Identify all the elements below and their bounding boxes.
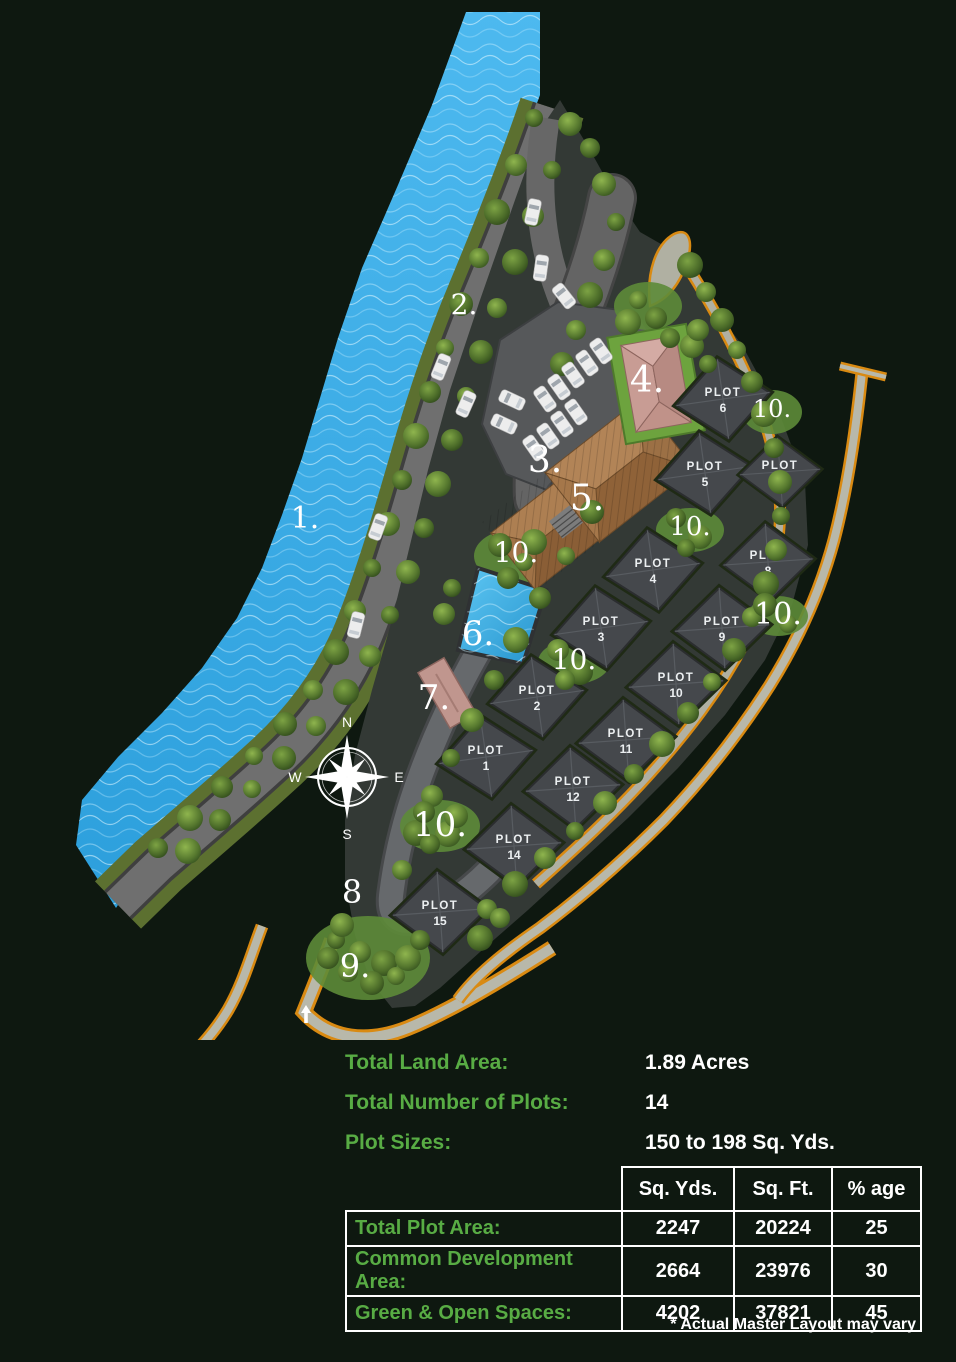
- plot-label: PLOT: [468, 745, 505, 757]
- marker-10b: 10.: [669, 512, 710, 542]
- disclaimer-note: * Actual Master Layout may vary: [670, 1316, 916, 1334]
- marker-10e: 10.: [413, 805, 467, 845]
- areas-table: Sq. Yds. Sq. Ft. % age Total Plot Area: …: [345, 1166, 922, 1332]
- summary-info: Total Land Area: 1.89 Acres Total Number…: [345, 1050, 920, 1170]
- plot-number: 14: [507, 848, 521, 862]
- marker-1: 1.: [291, 501, 320, 536]
- table-row-label: Green & Open Spaces:: [346, 1296, 622, 1331]
- tree-icon: [245, 747, 263, 765]
- tree-icon: [330, 913, 354, 937]
- tree-icon: [392, 860, 412, 880]
- tree-icon: [525, 109, 543, 127]
- tree-icon: [177, 805, 203, 831]
- tree-icon: [502, 871, 528, 897]
- plot-label: PLOT: [555, 776, 592, 788]
- tree-icon: [387, 967, 405, 985]
- tree-icon: [359, 645, 381, 667]
- tree-icon: [490, 908, 510, 928]
- tree-icon: [467, 925, 493, 951]
- tree-icon: [677, 702, 699, 724]
- tree-icon: [211, 776, 233, 798]
- tree-icon: [529, 587, 551, 609]
- table-cell: 20224: [734, 1211, 832, 1246]
- plot-number: 9: [719, 630, 726, 644]
- master-layout-page: PLOT 6 PLOT 5 PLOT 7 PLOT: [0, 0, 956, 1362]
- tree-icon: [566, 320, 586, 340]
- compass-east-label: E: [394, 769, 403, 785]
- compass-north-label: N: [342, 714, 352, 730]
- info-value: 150 to 198 Sq. Yds.: [645, 1130, 835, 1155]
- plot-number: 12: [566, 790, 580, 804]
- tree-icon: [577, 282, 603, 308]
- tree-icon: [505, 154, 527, 176]
- tree-icon: [484, 670, 504, 690]
- plot-label: PLOT: [422, 900, 459, 912]
- table-row: Total Plot Area: 2247 20224 25: [346, 1211, 921, 1246]
- tree-icon: [534, 847, 556, 869]
- tree-icon: [593, 249, 615, 271]
- info-row: Total Number of Plots: 14: [345, 1090, 920, 1115]
- tree-icon: [649, 731, 675, 757]
- tree-icon: [728, 341, 746, 359]
- tree-icon: [607, 213, 625, 231]
- tree-icon: [687, 319, 709, 341]
- tree-icon: [403, 423, 429, 449]
- tree-icon: [703, 673, 721, 691]
- tree-icon: [566, 822, 584, 840]
- table-header-pct: % age: [832, 1167, 921, 1211]
- tree-icon: [677, 252, 703, 278]
- table-cell: 25: [832, 1211, 921, 1246]
- plot-number: 1: [483, 759, 490, 773]
- marker-4: 4.: [630, 360, 664, 401]
- table-header-row: Sq. Yds. Sq. Ft. % age: [346, 1167, 921, 1211]
- tree-icon: [660, 328, 680, 348]
- tree-icon: [772, 507, 790, 525]
- site-map: PLOT 6 PLOT 5 PLOT 7 PLOT: [0, 0, 956, 1040]
- tree-icon: [425, 471, 451, 497]
- table-header-sq-yds: Sq. Yds.: [622, 1167, 734, 1211]
- table-header-sq-ft: Sq. Ft.: [734, 1167, 832, 1211]
- table-header-blank: [346, 1167, 622, 1211]
- table-row-label: Total Plot Area:: [346, 1211, 622, 1246]
- tree-icon: [484, 199, 510, 225]
- tree-icon: [396, 560, 420, 584]
- tree-icon: [764, 438, 784, 458]
- tree-icon: [209, 809, 231, 831]
- tree-icon: [645, 307, 667, 329]
- tree-icon: [615, 309, 641, 335]
- plot-number: 3: [598, 630, 605, 644]
- marker-10a: 10.: [494, 536, 539, 569]
- marker-5: 5.: [570, 478, 604, 519]
- table-cell: 30: [832, 1246, 921, 1296]
- tree-icon: [381, 606, 399, 624]
- tree-icon: [333, 679, 359, 705]
- plot-label: PLOT: [687, 461, 724, 473]
- plot-label: PLOT: [583, 616, 620, 628]
- plot-number: 11: [620, 742, 633, 756]
- plot-number: 4: [650, 572, 657, 586]
- tree-icon: [502, 249, 528, 275]
- tree-icon: [543, 161, 561, 179]
- tree-icon: [624, 764, 644, 784]
- table-cell: 23976: [734, 1246, 832, 1296]
- info-label: Total Number of Plots:: [345, 1090, 645, 1115]
- tree-icon: [303, 680, 323, 700]
- tree-icon: [323, 639, 349, 665]
- table-cell: 2247: [622, 1211, 734, 1246]
- plot-number: 10: [669, 686, 683, 700]
- tree-icon: [768, 470, 792, 494]
- tree-icon: [487, 298, 507, 318]
- marker-3: 3.: [528, 440, 562, 481]
- plot-number: 5: [702, 475, 709, 489]
- tree-icon: [460, 708, 484, 732]
- tree-icon: [441, 429, 463, 451]
- tree-icon: [469, 340, 493, 364]
- tree-icon: [273, 712, 297, 736]
- tree-icon: [306, 716, 326, 736]
- plot-label: PLOT: [705, 387, 742, 399]
- tree-icon: [363, 559, 381, 577]
- tree-icon: [592, 172, 616, 196]
- tree-icon: [557, 547, 575, 565]
- info-value: 1.89 Acres: [645, 1050, 749, 1075]
- tree-icon: [710, 308, 734, 332]
- plot-label: PLOT: [704, 616, 741, 628]
- marker-10c: 10.: [552, 643, 597, 676]
- tree-icon: [696, 282, 716, 302]
- tree-icon: [433, 603, 455, 625]
- compass-west-label: W: [288, 769, 302, 785]
- plot-label: PLOT: [658, 672, 695, 684]
- tree-icon: [272, 746, 296, 770]
- table-row-label: Common Development Area:: [346, 1246, 622, 1296]
- tree-icon: [558, 112, 582, 136]
- tree-icon: [419, 381, 441, 403]
- table-row: Common Development Area: 2664 23976 30: [346, 1246, 921, 1296]
- info-label: Plot Sizes:: [345, 1130, 645, 1155]
- plot-label: PLOT: [608, 728, 645, 740]
- info-value: 14: [645, 1090, 668, 1115]
- marker-8: 8: [342, 873, 362, 911]
- plot-label: PLOT: [635, 558, 672, 570]
- marker-2: 2.: [451, 288, 478, 321]
- tree-icon: [443, 579, 461, 597]
- tree-icon: [175, 838, 201, 864]
- tree-icon: [497, 567, 519, 589]
- tree-icon: [741, 371, 763, 393]
- tree-icon: [317, 947, 339, 969]
- tree-icon: [148, 838, 168, 858]
- marker-10f: 10.: [753, 395, 791, 423]
- plot-number: 6: [720, 401, 727, 415]
- tree-icon: [765, 539, 787, 561]
- info-row: Plot Sizes: 150 to 198 Sq. Yds.: [345, 1130, 920, 1155]
- compass-south-label: S: [342, 826, 351, 842]
- tree-icon: [414, 518, 434, 538]
- tree-icon: [629, 291, 647, 309]
- info-row: Total Land Area: 1.89 Acres: [345, 1050, 920, 1075]
- tree-icon: [392, 470, 412, 490]
- tree-icon: [410, 930, 430, 950]
- tree-icon: [722, 638, 746, 662]
- plot-label: PLOT: [496, 834, 533, 846]
- marker-6: 6.: [462, 614, 494, 654]
- marker-9: 9.: [340, 947, 371, 985]
- marker-10d: 10.: [754, 597, 802, 632]
- plot-number: 2: [534, 699, 541, 713]
- tree-icon: [503, 627, 529, 653]
- marker-7: 7.: [418, 678, 450, 718]
- info-label: Total Land Area:: [345, 1050, 645, 1075]
- plot-number: 15: [433, 914, 447, 928]
- tree-icon: [469, 248, 489, 268]
- table-cell: 2664: [622, 1246, 734, 1296]
- plot-label: PLOT: [519, 685, 556, 697]
- tree-icon: [580, 138, 600, 158]
- tree-icon: [699, 355, 717, 373]
- tree-icon: [593, 791, 617, 815]
- tree-icon: [243, 780, 261, 798]
- tree-icon: [442, 749, 460, 767]
